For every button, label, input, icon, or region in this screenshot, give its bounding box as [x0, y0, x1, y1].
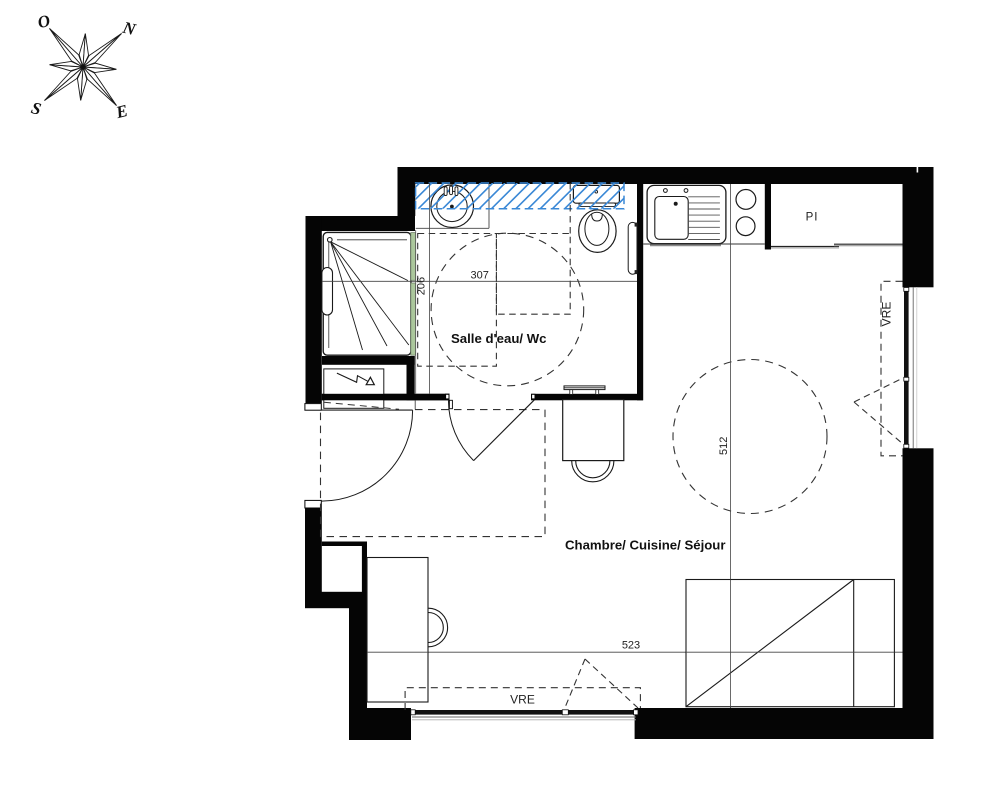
svg-text:PI: PI [806, 212, 819, 224]
svg-text:VRE: VRE [510, 693, 535, 707]
svg-text:206: 206 [416, 277, 428, 295]
svg-text:Salle d'eau/ Wc: Salle d'eau/ Wc [451, 331, 546, 346]
svg-text:Chambre/ Cuisine/ Séjour: Chambre/ Cuisine/ Séjour [565, 538, 726, 553]
svg-text:VRE: VRE [880, 302, 894, 327]
svg-text:512: 512 [718, 437, 730, 455]
svg-text:523: 523 [622, 640, 640, 652]
svg-text:307: 307 [471, 270, 489, 282]
